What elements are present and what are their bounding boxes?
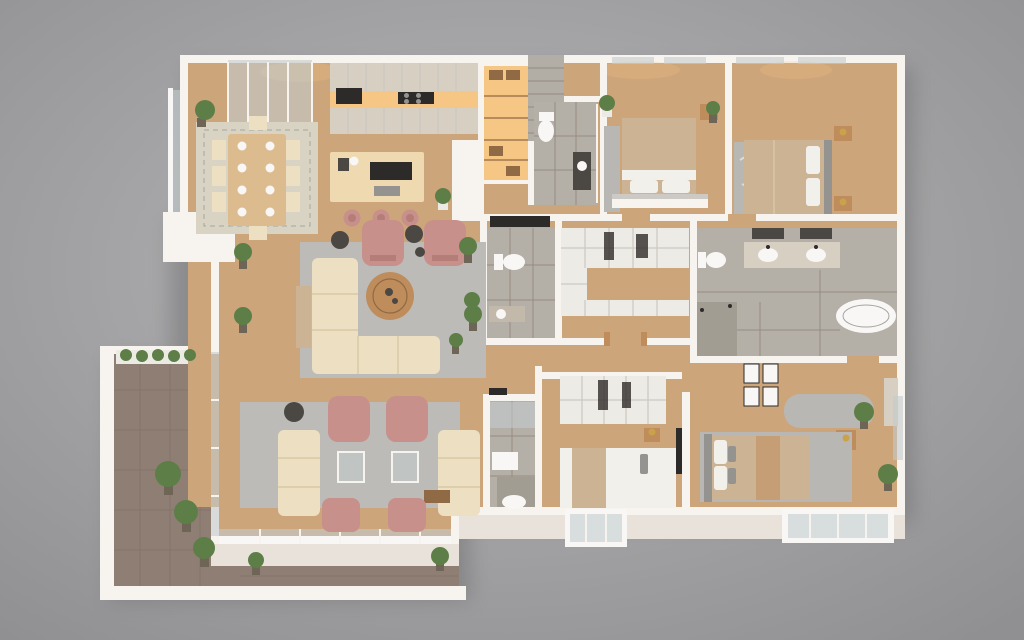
family-coffee-table: [424, 490, 450, 503]
island-hob: [370, 162, 412, 180]
entry-closet-backlight: [484, 66, 528, 180]
vanity-mirror-2: [800, 228, 832, 239]
hall-bathroom: [534, 102, 597, 205]
toilet-bowl-2: [503, 254, 525, 270]
bath3-wall-panel: [489, 388, 507, 395]
bed1-pillow-1: [630, 180, 658, 193]
powder-room: [487, 228, 555, 338]
family-side-table: [284, 402, 304, 422]
master-east-window: [893, 396, 903, 460]
bed3-blanket: [572, 448, 606, 508]
balcony-rail-left: [100, 346, 114, 600]
side-table-2: [405, 225, 423, 243]
floor-plan-render: [0, 0, 1024, 640]
glass-table-1: [338, 452, 364, 482]
dining-area: [196, 116, 318, 240]
dining-table: [228, 134, 286, 226]
wall-bath3-east: [535, 366, 542, 507]
console-bench: [296, 286, 311, 348]
bath3-glass-screen: [490, 402, 535, 428]
family-sofa-left: [278, 430, 320, 516]
glass-wall-frame: [219, 536, 451, 544]
bathtub: [836, 299, 896, 333]
master-bathroom: [697, 228, 897, 356]
side-table-3: [415, 247, 425, 257]
master-accent-pillow-2: [728, 468, 736, 484]
bed1-pillow-2: [662, 180, 690, 193]
wall-h214-b: [650, 214, 728, 221]
wall-bed1-bed2: [725, 63, 732, 214]
wall-bed3-master: [682, 392, 690, 507]
bed3-pillow-2: [650, 478, 664, 502]
master-bay-window: [782, 509, 894, 543]
living-tv: [490, 216, 550, 227]
toilet-tank-3: [698, 252, 706, 268]
bed3-bay-window: [565, 509, 627, 547]
island-mat: [374, 186, 400, 196]
toilet-tank-1: [539, 112, 554, 121]
toilet-tank-2: [494, 254, 503, 270]
wall-h338-a: [480, 338, 604, 345]
glass-table-2: [392, 452, 418, 482]
west-window-glass: [211, 352, 219, 536]
bed3-accent-pillow: [640, 454, 648, 474]
side-table-1: [331, 231, 349, 249]
oven: [336, 88, 362, 104]
bath3-sink: [492, 452, 518, 470]
wall-hallbath-north: [564, 96, 600, 102]
bed3-pillow-1: [650, 452, 664, 476]
hall-door-frame-1: [604, 332, 610, 346]
bed3-window-glass: [570, 514, 622, 542]
closet-bottom-unit: [561, 300, 689, 316]
master-pillow-2: [714, 466, 727, 490]
family-sofa-right: [438, 430, 480, 516]
kettle: [350, 157, 359, 166]
screenshot-canvas: [0, 0, 1024, 640]
slipper-chair-2: [388, 498, 426, 532]
bathroom-3: [489, 388, 535, 509]
vanity-sink-2: [806, 248, 826, 262]
vanity-mirror-1: [752, 228, 784, 239]
bed1-sheet: [622, 170, 696, 180]
hallbath-sink: [577, 161, 587, 171]
vanity-sink-1: [758, 248, 778, 262]
powder-sink: [496, 309, 506, 319]
family-armchair-1: [328, 396, 370, 442]
wall-west-upper: [211, 262, 219, 354]
wall-h338-b: [644, 338, 695, 345]
toilet-bowl-1: [538, 120, 554, 142]
bed2-headboard: [824, 140, 832, 214]
master-pillow-1: [714, 440, 727, 464]
family-south-wall-face: [211, 544, 459, 566]
entry-niche-block: [452, 140, 478, 214]
master-accent-pillow-1: [728, 446, 736, 462]
wall-bath3-north: [483, 394, 542, 401]
bed1-partition-top: [612, 194, 708, 199]
sectional-horizontal: [312, 336, 440, 374]
wall-mbath-south-b: [879, 356, 905, 363]
bath3-mat: [502, 495, 526, 509]
family-armchair-2: [386, 396, 428, 442]
wall-h214-c: [756, 214, 905, 221]
hall-door-frame-2: [641, 332, 647, 346]
wall-powder-east: [555, 221, 562, 345]
wall-mbath-south-a: [690, 356, 847, 363]
wall-closet-bath: [690, 221, 697, 363]
coffee-maker: [338, 158, 349, 171]
bed2-pillow-2: [806, 178, 820, 206]
wall-bath3-west: [483, 394, 490, 507]
bed2-pillow-1: [806, 146, 820, 174]
cooktop: [398, 92, 434, 104]
master-throw: [756, 436, 780, 500]
bed3-tv: [676, 428, 682, 474]
toilet-bowl-3: [706, 252, 726, 268]
powder-counter: [489, 306, 525, 322]
master-headboard: [704, 434, 712, 502]
slipper-chair-1: [322, 498, 360, 532]
